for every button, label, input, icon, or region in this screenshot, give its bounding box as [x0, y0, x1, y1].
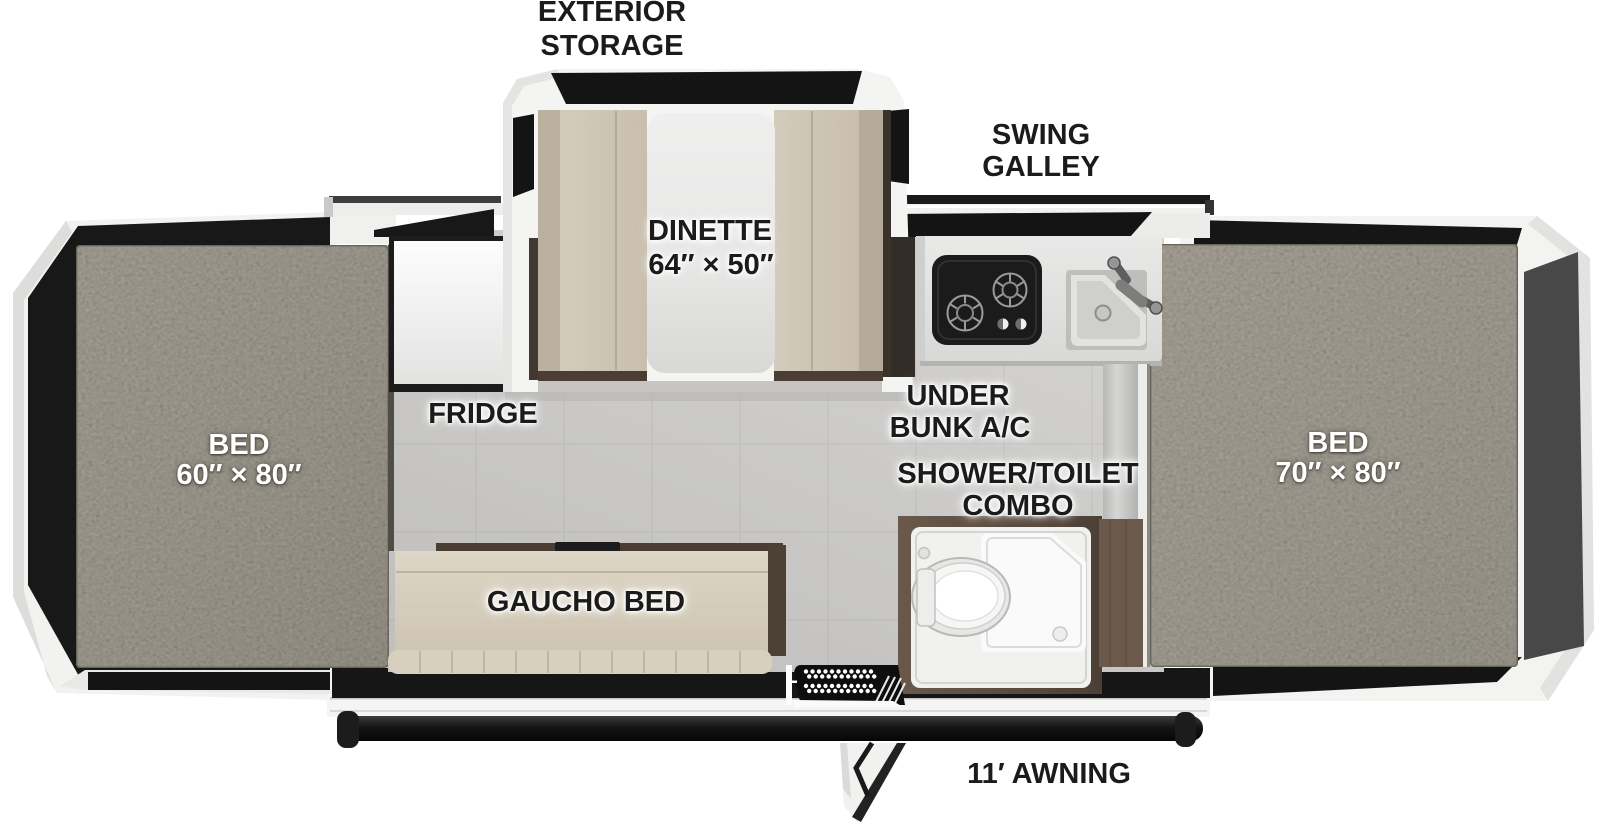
- svg-text:DINETTE: DINETTE: [648, 215, 772, 247]
- svg-text:BED: BED: [1307, 427, 1368, 459]
- svg-text:EXTERIOR: EXTERIOR: [538, 0, 686, 28]
- svg-text:UNDER: UNDER: [906, 380, 1009, 412]
- svg-text:SHOWER/TOILET: SHOWER/TOILET: [897, 458, 1138, 490]
- svg-text:BED: BED: [208, 429, 269, 461]
- svg-text:70″ × 80″: 70″ × 80″: [1275, 457, 1400, 489]
- svg-text:STORAGE: STORAGE: [541, 30, 684, 62]
- svg-text:GAUCHO BED: GAUCHO BED: [487, 586, 685, 618]
- svg-text:64″ × 50″: 64″ × 50″: [648, 249, 773, 281]
- svg-text:COMBO: COMBO: [962, 490, 1073, 522]
- svg-text:GALLEY: GALLEY: [982, 151, 1100, 183]
- svg-text:11′ AWNING: 11′ AWNING: [967, 758, 1131, 790]
- svg-text:BUNK A/C: BUNK A/C: [890, 412, 1031, 444]
- svg-text:FRIDGE: FRIDGE: [428, 398, 538, 430]
- svg-text:SWING: SWING: [992, 119, 1090, 151]
- svg-text:60″ × 80″: 60″ × 80″: [176, 459, 301, 491]
